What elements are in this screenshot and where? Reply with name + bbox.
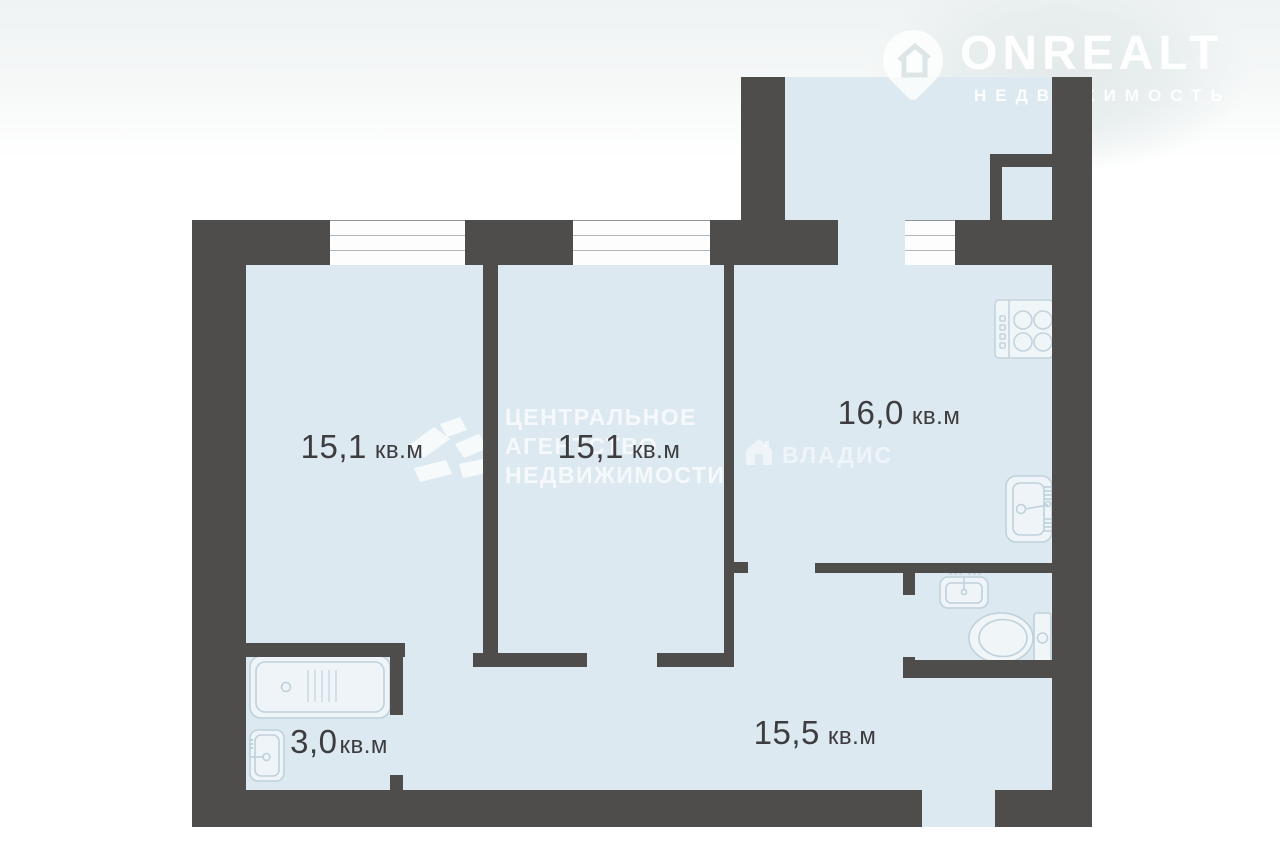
room-middle-area-unit: кв.м <box>632 437 680 464</box>
vladis-house-icon <box>744 437 774 473</box>
hallway-area-label: 15,5кв.м <box>754 714 877 752</box>
wc-sink-icon <box>938 572 990 610</box>
wall-kitchen-wc <box>815 563 1055 573</box>
vladis-watermark: ВЛАДИС <box>744 437 893 473</box>
bathtub-icon <box>248 654 392 720</box>
wall-bottom-right <box>995 790 1092 827</box>
vladis-watermark-text: ВЛАДИС <box>782 442 893 469</box>
kitchen-sink-icon <box>1004 474 1054 544</box>
kitchen-area-unit: кв.м <box>912 403 960 430</box>
wall-wc-left-upper <box>903 573 915 595</box>
bathroom-area-label: 3,0кв.м <box>290 723 388 761</box>
room-left-area-unit: кв.м <box>375 437 423 464</box>
wall-kitchen-top <box>955 220 1055 265</box>
floor-balcony-passage <box>838 220 905 265</box>
hallway-area-unit: кв.м <box>828 723 876 750</box>
wall-bathroom-top <box>242 643 405 657</box>
kitchen-area-label: 16,0кв.м <box>838 394 961 432</box>
onrealt-pin-icon <box>871 18 956 103</box>
room-left-area-value: 15,1 <box>301 428 367 465</box>
wall-bathroom-right-stub <box>390 775 403 790</box>
window-left-room <box>330 220 465 265</box>
wall-shaft-left <box>990 154 1002 222</box>
room-left-area-label: 15,1кв.м <box>301 428 424 466</box>
bathroom-area-unit: кв.м <box>339 732 387 759</box>
wall-bathroom-right-upper <box>390 643 403 715</box>
hallway-area-value: 15,5 <box>754 714 820 751</box>
wall-wc-bottom <box>903 660 1055 678</box>
wall-bottom-left <box>192 790 922 827</box>
toilet-icon <box>966 610 1054 666</box>
wall-hall-stub <box>734 562 748 573</box>
wall-outer-right <box>1052 77 1092 827</box>
wall-middle-room-bottom-left <box>473 653 587 667</box>
stove-icon <box>993 298 1055 360</box>
kitchen-area-value: 16,0 <box>838 394 904 431</box>
room-middle-area-value: 15,1 <box>558 428 624 465</box>
room-middle-area-label: 15,1кв.м <box>558 428 681 466</box>
wall-middle-room-bottom-right <box>657 653 733 667</box>
wall-top-middle <box>465 220 573 265</box>
wall-rooms-divider <box>483 265 498 653</box>
window-middle-room <box>573 220 710 265</box>
window-kitchen-balcony <box>905 220 955 265</box>
bathroom-area-value: 3,0 <box>290 723 337 760</box>
floor-entrance-gap <box>922 790 995 827</box>
bathroom-sink-icon <box>248 728 288 783</box>
onrealt-logo-subtitle: НЕДВИЖИМОСТЬ <box>974 86 1232 106</box>
wall-balcony-left <box>741 77 785 265</box>
onrealt-logo-text: ONREALT <box>960 26 1223 81</box>
wall-kitchen-divider <box>724 265 734 667</box>
wall-outer-left <box>192 220 246 790</box>
